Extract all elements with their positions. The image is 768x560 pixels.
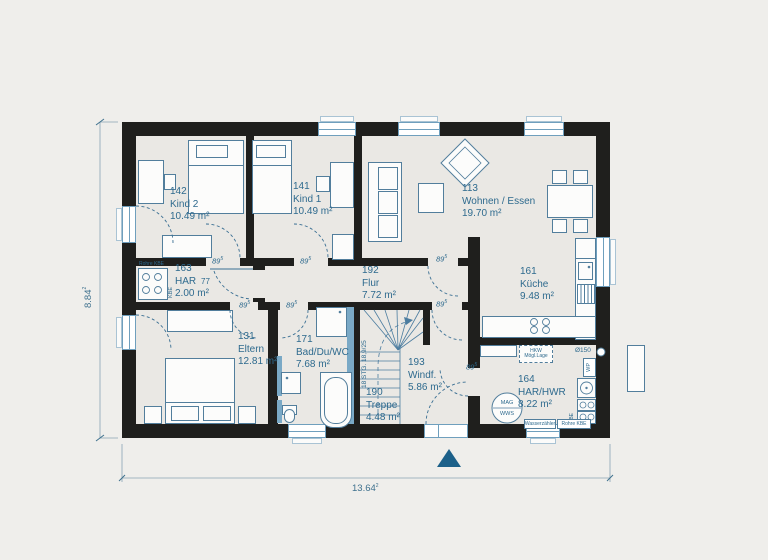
room-name: Windf.	[408, 370, 442, 383]
room-label-kind1: 141 Kind 1 10.49 m²	[293, 181, 332, 219]
room-area: 5.86 m²	[408, 382, 442, 395]
room-area: 10.49 m²	[293, 206, 332, 219]
door-width-label: 895	[436, 299, 447, 309]
door-width-sup: 5	[474, 362, 477, 368]
door-width-sup: 5	[444, 254, 447, 260]
dimension-width: 13.642	[352, 483, 379, 494]
exterior-unit	[627, 345, 645, 392]
door-width-label: 895	[436, 254, 447, 264]
door-width-har: 77	[201, 277, 210, 286]
room-number: 161	[520, 266, 554, 279]
terrace-door-eltern	[122, 315, 136, 350]
room-number: 190	[366, 387, 400, 400]
door-width-sup: 5	[444, 299, 447, 305]
room-label-wohnen: 113 Wohnen / Essen 19.70 m²	[462, 183, 535, 221]
room-number: 171	[296, 334, 349, 347]
door-gap-hwr	[468, 368, 480, 396]
room-name: Flur	[362, 278, 396, 291]
door-gap-har	[253, 270, 265, 298]
door-width-sup: 5	[308, 256, 311, 262]
room-area: 19.70 m²	[462, 208, 535, 221]
door-width-sup: 5	[294, 300, 297, 306]
hkw-possible-location: HKW Mögl.Lage	[519, 345, 553, 363]
door-width-label: 895	[286, 300, 297, 310]
room-area: 10.49 m²	[170, 211, 209, 224]
window-top-1	[318, 122, 356, 136]
room-area: 9.48 m²	[520, 291, 554, 304]
room-name: Bad/Du/WC	[296, 347, 349, 360]
pillow-kind1	[256, 145, 286, 158]
room-name: Eltern	[238, 344, 277, 357]
dishwasher	[577, 284, 595, 304]
dimension-height-value: 8.84	[83, 290, 94, 309]
window-glass-line	[525, 129, 563, 130]
sill	[400, 116, 438, 122]
room-label-kueche: 161 Küche 9.48 m²	[520, 266, 554, 304]
dimension-width-sup: 2	[376, 483, 379, 489]
room-number: 164	[518, 374, 566, 387]
room-number: 193	[408, 357, 442, 370]
water-meter-box: Wasserzähler	[524, 419, 556, 429]
kbe-label-har: KBE	[168, 274, 174, 298]
sofa-cushion	[378, 215, 398, 238]
har-appliance	[138, 268, 168, 300]
rohre-kbe-label-har: Rohre KBE	[139, 261, 164, 267]
sill	[116, 208, 122, 241]
room-area: 7.68 m²	[296, 359, 349, 372]
dimension-height-sup: 2	[82, 287, 88, 290]
terrace-door-kind2	[122, 206, 136, 243]
kitchen-sink	[578, 262, 593, 280]
room-area: 4.48 m²	[366, 412, 400, 425]
dimension-width-value: 13.64	[352, 483, 376, 494]
room-name: Kind 2	[170, 199, 209, 212]
room-number: 142	[170, 186, 209, 199]
sill	[320, 116, 354, 122]
room-name: Wohnen / Essen	[462, 196, 535, 209]
room-name: Küche	[520, 279, 554, 292]
heat-pump-box: WP	[583, 358, 596, 377]
door-width-sup: 5	[247, 300, 250, 306]
bathtub-inner	[324, 377, 348, 424]
room-name: Treppe	[366, 400, 400, 413]
pillow-eltern	[203, 406, 231, 421]
window-bottom-bad	[288, 424, 326, 438]
water-meter-label: Wasserzähler	[525, 422, 555, 427]
window-glass-line	[399, 129, 439, 130]
pillow-kind2	[196, 145, 228, 158]
room-label-flur: 192 Flur 7.72 m²	[362, 265, 396, 303]
room-number: 192	[362, 265, 396, 278]
nightstand	[144, 406, 162, 424]
window-glass-line	[603, 238, 604, 286]
room-label-treppe: 190 Treppe 4.48 m²	[366, 387, 400, 425]
shower	[316, 307, 347, 337]
coffee-table	[418, 183, 444, 213]
dining-chair	[573, 170, 588, 184]
window-right-kueche	[596, 237, 610, 287]
desk-kind2	[138, 160, 164, 204]
window-top-2	[398, 122, 440, 136]
washing-machine	[577, 378, 596, 398]
dining-chair	[552, 170, 567, 184]
room-area: 12.81 m²	[238, 356, 277, 369]
room-label-kind2: 142 Kind 2 10.49 m²	[170, 186, 209, 224]
dimension-height: 8.842	[82, 252, 94, 308]
window-glass-line	[289, 431, 325, 432]
door-width-label: 895	[239, 300, 250, 310]
window-glass-line	[129, 316, 130, 349]
entrance-door-frame	[438, 425, 439, 437]
dining-chair	[552, 219, 567, 233]
sill	[116, 317, 122, 348]
dining-table	[547, 185, 593, 218]
bath-sink	[281, 372, 301, 394]
wall-kueche-left	[468, 237, 480, 345]
window-glass-line	[319, 129, 355, 130]
kitchen-counter-bottom	[482, 316, 596, 338]
room-area: 8.22 m²	[518, 399, 566, 412]
desk-kind1	[330, 162, 354, 208]
dresser-kind2	[162, 235, 212, 258]
nightstand	[238, 406, 256, 424]
room-label-bad: 171 Bad/Du/WC 7.68 m²	[296, 334, 349, 372]
sofa-cushion	[378, 167, 398, 190]
wc-bowl	[284, 409, 295, 423]
wardrobe-eltern	[167, 310, 233, 332]
duct-label: Ø150	[575, 347, 591, 354]
room-name: Kind 1	[293, 194, 332, 207]
sill	[526, 116, 562, 122]
door-width-label: 895	[212, 256, 223, 266]
room-number: 163	[175, 263, 209, 276]
wall-treppe-windf-stub	[423, 310, 430, 345]
dining-chair	[573, 219, 588, 233]
pipes-box: Rohre KBE	[557, 419, 591, 429]
hwr-cupboard	[480, 345, 517, 357]
sofa-cushion	[378, 191, 398, 214]
room-area: 2.00 m²	[175, 288, 209, 301]
blanket-line	[166, 402, 234, 403]
dresser-kind1	[332, 234, 354, 260]
blanket-line	[253, 165, 291, 166]
room-number: 141	[293, 181, 332, 194]
window-glass-line	[129, 207, 130, 242]
wws-label: WWS	[496, 411, 518, 418]
door-width-label: 895	[466, 362, 477, 372]
door-width-label: 895	[300, 256, 311, 266]
floor-plan-canvas: KBE Rohre KBE HKW Mögl.Lage Ø150 WP KBE …	[0, 0, 768, 560]
wall-exterior-left	[122, 136, 136, 424]
entrance-marker-triangle	[437, 449, 461, 467]
hkw-line2: Mögl.Lage	[524, 354, 547, 359]
wall-kind1-wohnen	[354, 136, 362, 258]
pipes-label: Rohre KBE	[561, 422, 586, 427]
room-name: HAR/HWR	[518, 387, 566, 400]
blanket-line	[189, 165, 243, 166]
room-label-windf: 193 Windf. 5.86 m²	[408, 357, 442, 395]
window-glass-line	[527, 431, 559, 432]
door-width-sup: 5	[220, 256, 223, 262]
appliance-stack-top	[577, 399, 596, 411]
room-number: 131	[238, 331, 277, 344]
wp-label: WP	[587, 363, 592, 372]
room-area: 7.72 m²	[362, 290, 396, 303]
sill	[610, 239, 616, 285]
pillow-eltern	[171, 406, 199, 421]
counter-divider	[576, 258, 595, 259]
sill	[530, 438, 556, 444]
room-label-hwr: 164 HAR/HWR 8.22 m²	[518, 374, 566, 412]
mag-label: MAG	[496, 400, 518, 407]
window-top-3	[524, 122, 564, 136]
sill	[292, 438, 322, 444]
room-number: 113	[462, 183, 535, 196]
stairs-note: 18 STG. 18,9/25	[361, 312, 368, 388]
entrance-door	[424, 424, 468, 438]
room-label-eltern: 131 Eltern 12.81 m²	[238, 331, 277, 369]
